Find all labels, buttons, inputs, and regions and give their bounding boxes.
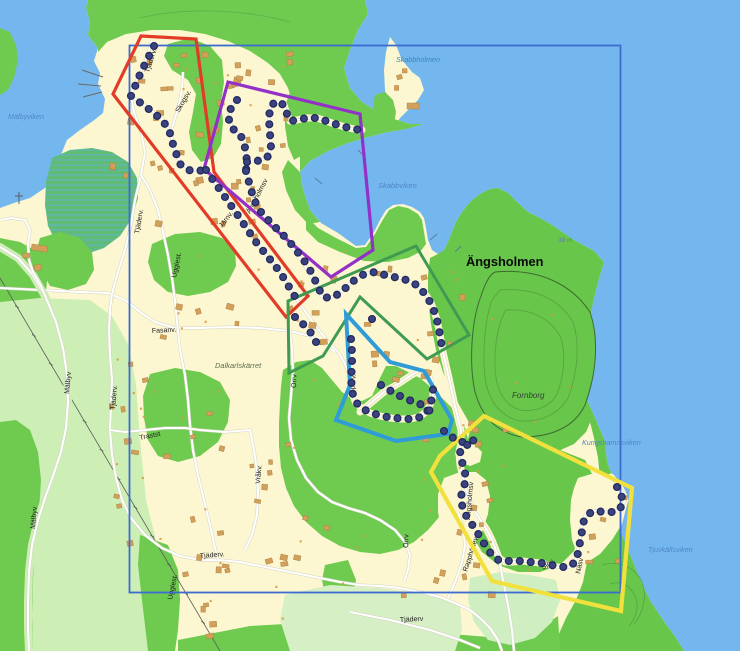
- svg-text:Vråkv.: Vråkv.: [254, 464, 264, 484]
- svg-text:38 m: 38 m: [558, 237, 572, 244]
- svg-text:Mälbyviken: Mälbyviken: [8, 112, 44, 121]
- svg-text:Ängsholmen: Ängsholmen: [466, 254, 544, 269]
- svg-text:Orrv: Orrv: [403, 534, 410, 548]
- svg-text:Fasanv.: Fasanv.: [152, 327, 177, 335]
- svg-text:Tjäderv: Tjäderv: [400, 616, 424, 624]
- svg-text:Skabbviken: Skabbviken: [378, 181, 417, 190]
- svg-text:Kungshamnsviken: Kungshamnsviken: [582, 438, 641, 447]
- svg-text:Orrv: Orrv: [291, 374, 298, 388]
- svg-text:Fornborg: Fornborg: [512, 391, 545, 400]
- svg-text:Dalkarlskärret: Dalkarlskärret: [215, 361, 262, 370]
- svg-text:Skabbholmen: Skabbholmen: [396, 55, 440, 64]
- svg-text:Tjuvkällsviken: Tjuvkällsviken: [648, 545, 693, 554]
